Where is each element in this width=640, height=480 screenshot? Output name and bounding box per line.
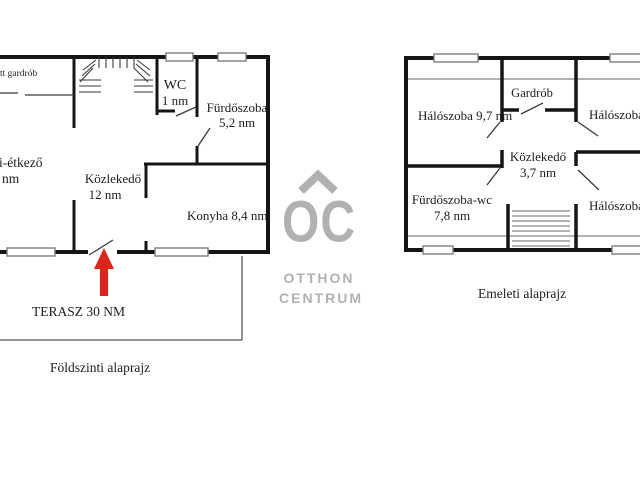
label-gardrob-ground: tt gardrób: [0, 69, 37, 80]
logo-name-line2: CENTRUM: [279, 291, 359, 305]
terrace-outline: [0, 256, 242, 340]
label-haloszoba1: Hálószoba 9,7 nm: [418, 109, 512, 124]
label-haloszoba2: Hálószoba: [589, 108, 640, 123]
label-furdoszoba-wc-area: 7,8 nm: [406, 209, 498, 224]
label-etkezo: i-étkező: [0, 155, 42, 171]
floorplan-page: tt gardrób WC 1 nm Fürdőszoba 5,2 nm i-é…: [0, 0, 640, 480]
label-kozlekedo-upper-area: 3,7 nm: [498, 166, 578, 181]
logo-name-line1: OTTHON: [279, 271, 359, 285]
label-etkezo-area: nm: [2, 171, 19, 187]
label-gardrob-upper: Gardrób: [501, 86, 563, 100]
logo-roof-icon: [301, 175, 335, 191]
stairs-upper-icon: [512, 211, 570, 246]
label-haloszoba3: Hálószoba: [589, 199, 640, 214]
label-konyha: Konyha 8,4 nm: [187, 209, 268, 224]
label-furdoszoba-area: 5,2 nm: [197, 116, 277, 131]
label-kozlekedo-ground: Közlekedő: [72, 172, 154, 187]
entrance-arrow-icon: [94, 248, 114, 296]
label-kozlekedo-ground-area: 12 nm: [64, 188, 146, 203]
logo-monogram: OC: [281, 194, 357, 253]
label-kozlekedo-upper: Közlekedő: [498, 150, 578, 165]
caption-upper-floor: Emeleti alaprajz: [478, 286, 566, 302]
stairs-ground-icon: [79, 57, 153, 92]
windows-ground: [7, 53, 246, 256]
label-wc-area: 1 nm: [155, 94, 195, 109]
label-furdoszoba-wc: Fürdőszoba-wc: [406, 193, 498, 208]
label-furdoszoba: Fürdőszoba: [197, 101, 277, 116]
label-wc: WC: [155, 78, 195, 94]
label-terasz: TERASZ 30 NM: [32, 304, 125, 320]
ground-floor-thin-partitions: [0, 93, 74, 95]
caption-ground-floor: Földszinti alaprajz: [50, 360, 150, 376]
